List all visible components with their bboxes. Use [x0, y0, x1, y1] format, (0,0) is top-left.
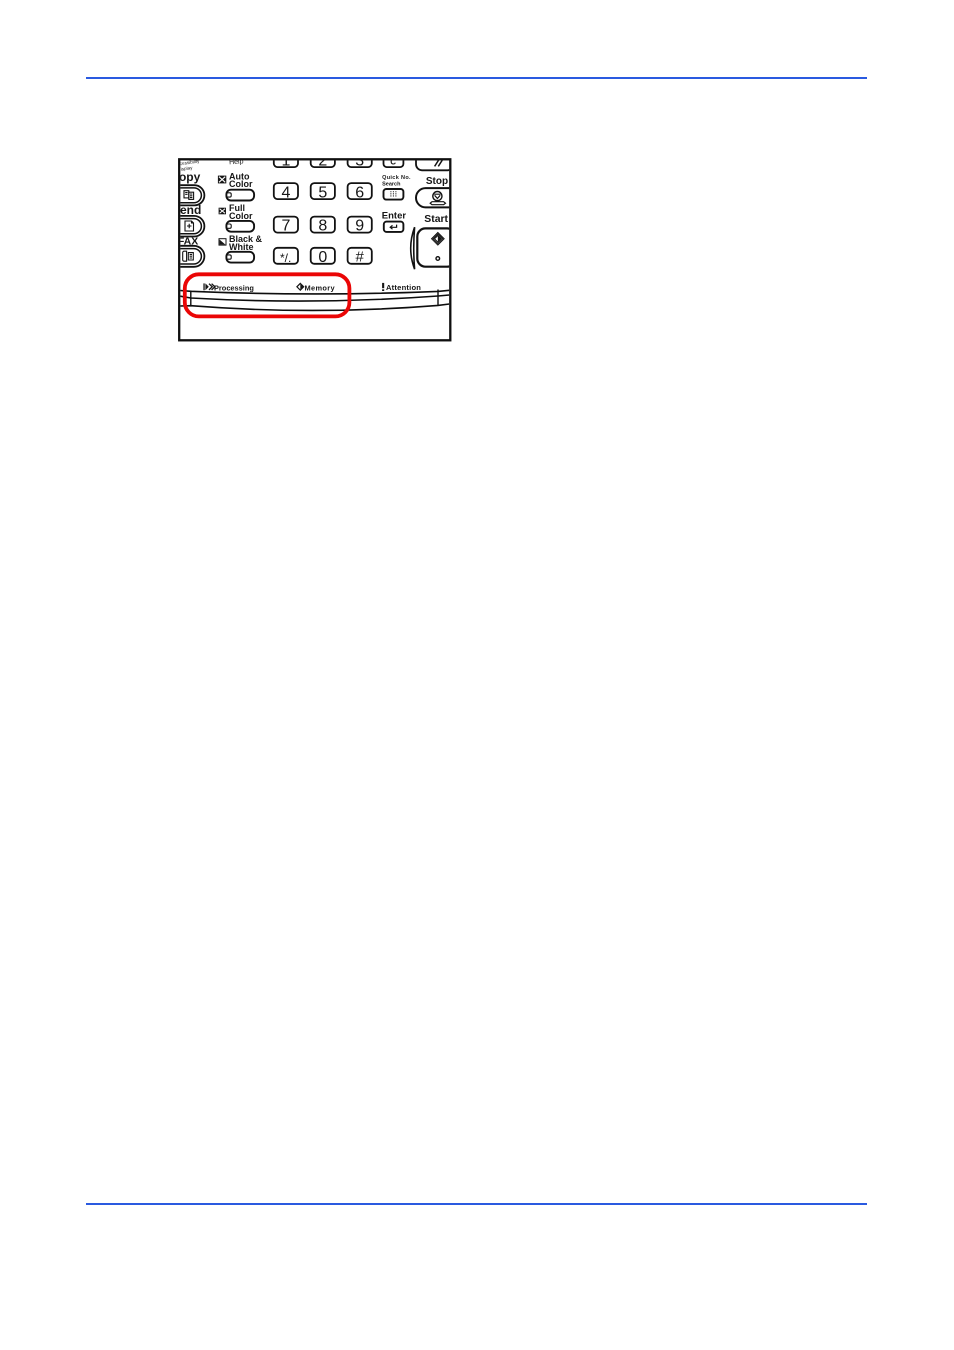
svg-text:3: 3 [355, 152, 364, 169]
svg-text:Color: Color [229, 179, 253, 189]
svg-text:5: 5 [318, 184, 327, 201]
svg-text:Enter: Enter [381, 210, 406, 221]
svg-text:6: 6 [355, 184, 364, 201]
svg-text:Search: Search [382, 181, 401, 187]
svg-text:Copy: Copy [170, 170, 200, 184]
svg-text:Memory: Memory [304, 283, 335, 292]
svg-text:8: 8 [318, 217, 327, 234]
svg-text:4: 4 [281, 184, 290, 201]
svg-text:2: 2 [318, 152, 327, 169]
svg-text:White: White [229, 241, 254, 251]
svg-text:Send: Send [172, 203, 201, 217]
svg-text:*/.: */. [280, 250, 291, 264]
svg-text:Quick No.: Quick No. [382, 175, 411, 181]
svg-text:FAX: FAX [177, 235, 197, 247]
svg-text:Processing: Processing [214, 283, 254, 292]
svg-text:#: # [355, 248, 364, 265]
svg-text:Start: Start [424, 214, 448, 225]
svg-text:1: 1 [281, 152, 290, 169]
svg-text:Attention: Attention [386, 282, 421, 291]
svg-text:7: 7 [281, 217, 290, 234]
svg-text:9: 9 [355, 217, 364, 234]
svg-text:Color: Color [229, 210, 253, 220]
svg-text:Stop: Stop [425, 175, 447, 186]
svg-text:0: 0 [318, 248, 327, 265]
